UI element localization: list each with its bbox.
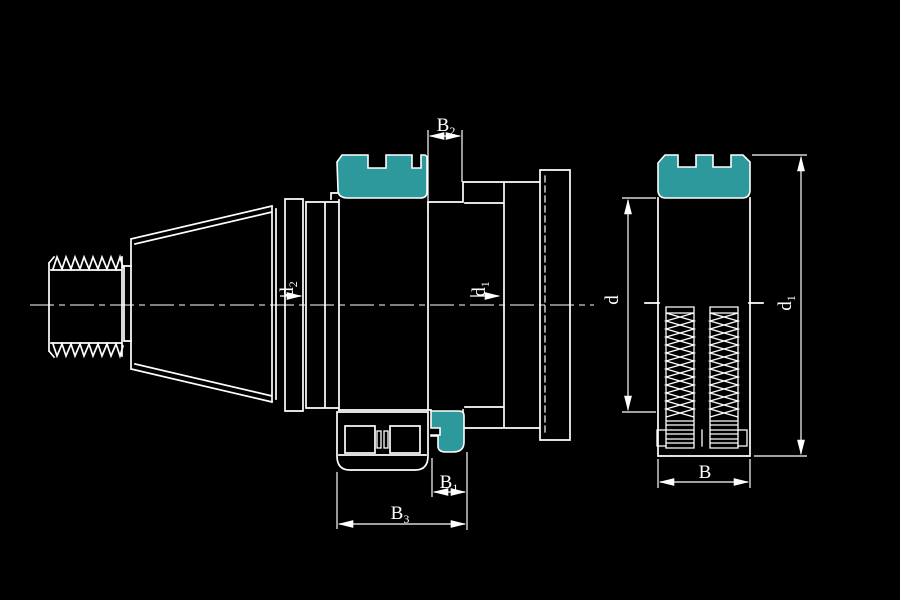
- taper-cone: [131, 206, 276, 402]
- threaded-stud: [49, 257, 131, 357]
- b2-extension-lines: [428, 130, 462, 210]
- spring-left: [666, 307, 694, 448]
- technical-drawing-canvas: B2 B1 B3 d2 d1: [0, 0, 900, 600]
- dimension-d-side: d: [602, 198, 656, 412]
- b1-label: B1: [440, 472, 459, 495]
- spring-right: [710, 307, 738, 448]
- d-side-extension-lines: [622, 198, 656, 412]
- d2-label: d2: [277, 281, 300, 297]
- clamping-nut-bottom: [431, 411, 464, 452]
- d1-front-label: d1: [469, 281, 492, 297]
- side-view: d d1 B: [602, 155, 807, 488]
- b-side-label: B: [699, 462, 712, 483]
- dimension-d1-front: d1: [469, 281, 499, 297]
- collet-chuck-drawing: B2 B1 B3 d2 d1: [0, 0, 900, 600]
- dimension-b1: B1: [432, 452, 467, 530]
- side-body-outline: [645, 198, 763, 456]
- dimension-b2: B2: [428, 115, 462, 210]
- dimension-d1-side: d1: [752, 155, 807, 456]
- slot-left: [345, 426, 375, 453]
- dimension-d2-front: d2: [277, 281, 301, 297]
- front-view: B2 B1 B3 d2 d1: [30, 115, 594, 530]
- b2-label: B2: [437, 115, 456, 138]
- slotted-shell: [337, 412, 428, 470]
- slotted-section: [337, 412, 428, 470]
- slot-tab-2: [384, 431, 388, 448]
- d1-side-label: d1: [775, 295, 798, 311]
- slot-right: [390, 426, 420, 453]
- d-side-label: d: [602, 295, 623, 305]
- flange-rings: [285, 193, 339, 411]
- side-nut-top: [658, 155, 750, 198]
- dimension-b-side: B: [658, 459, 750, 488]
- slot-tab-1: [377, 431, 381, 448]
- clamping-nut-top: [337, 155, 427, 198]
- b3-label: B3: [391, 503, 410, 526]
